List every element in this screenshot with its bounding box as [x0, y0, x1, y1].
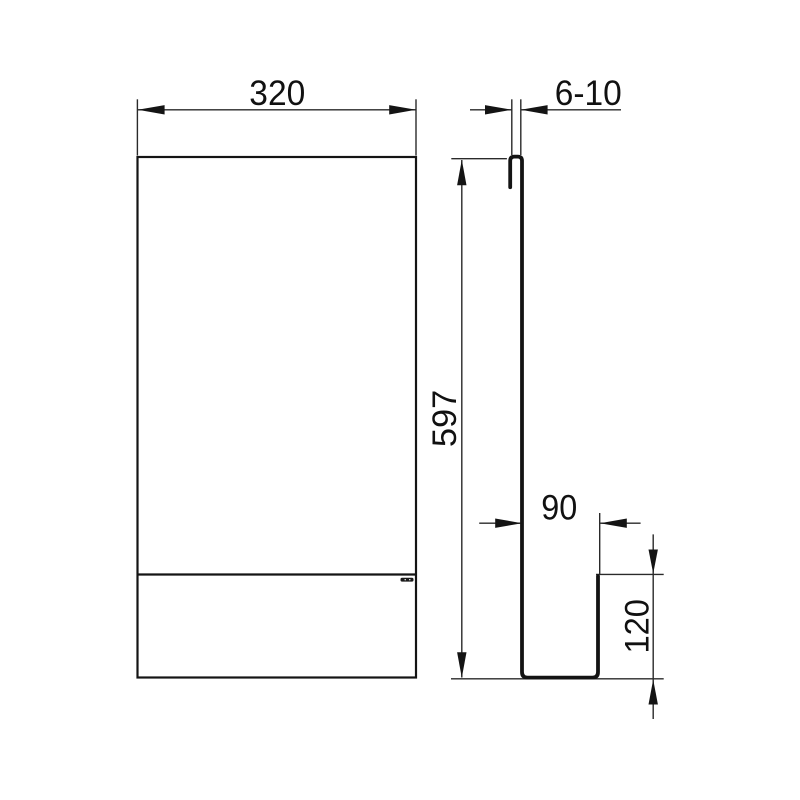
svg-text:597: 597 [426, 390, 464, 448]
svg-text:90: 90 [541, 488, 577, 528]
svg-text:320: 320 [249, 73, 305, 113]
svg-text:120: 120 [618, 599, 656, 654]
svg-text:6-10: 6-10 [555, 73, 622, 113]
